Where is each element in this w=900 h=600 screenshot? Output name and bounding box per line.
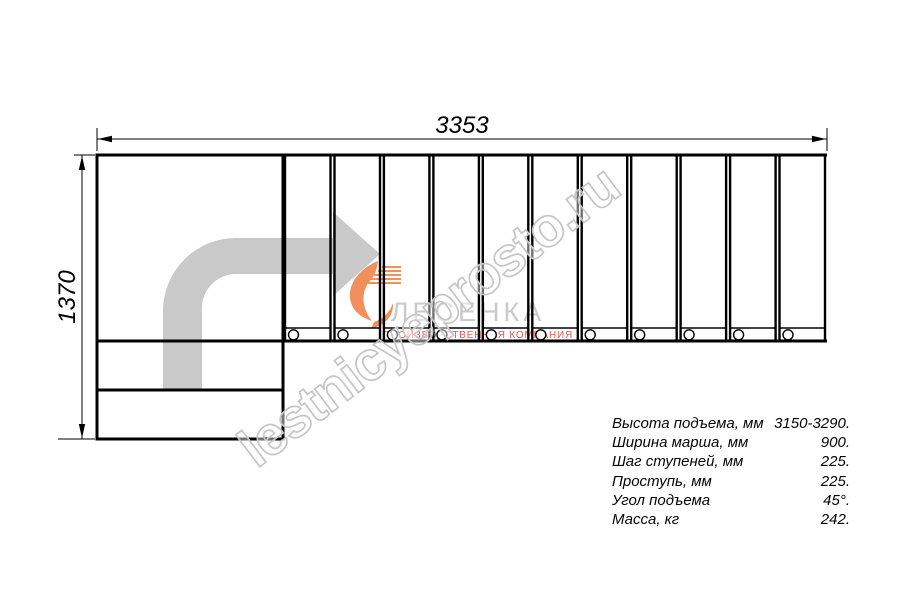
spec-value: 225. <box>821 472 850 491</box>
spec-label: Проступь, мм <box>612 472 712 491</box>
step-fixing-hole <box>783 330 793 340</box>
spec-label: Угол подъема <box>612 491 710 510</box>
step-fixing-hole <box>585 330 595 340</box>
spec-label: Масса, кг <box>612 510 679 529</box>
spec-row: Шаг ступеней, мм225. <box>612 452 850 471</box>
specs-table: Высота подъема, мм3150-3290.Ширина марша… <box>612 414 850 529</box>
spec-label: Ширина марша, мм <box>612 433 748 452</box>
step-rect <box>780 155 826 341</box>
step-rect <box>631 155 677 341</box>
spec-row: Высота подъема, мм3150-3290. <box>612 414 850 433</box>
top-dim-arrow-right <box>812 136 826 142</box>
stair-plan-page: ЛЕСЕНКА производственная компания <box>0 0 900 600</box>
step-fixing-hole <box>684 330 694 340</box>
spec-value: 225. <box>821 452 850 471</box>
spec-label: Высота подъема, мм <box>612 414 764 433</box>
top-dimension-label: 3353 <box>435 112 489 139</box>
spec-row: Угол подъема45°. <box>612 491 850 510</box>
spec-value: 45°. <box>823 491 850 510</box>
left-dimension-label: 1370 <box>54 270 81 324</box>
left-dim-arrow-top <box>79 156 85 170</box>
top-dim-arrow-left <box>98 136 112 142</box>
spec-value: 3150-3290. <box>774 414 850 433</box>
spec-row: Проступь, мм225. <box>612 472 850 491</box>
step-fixing-hole <box>635 330 645 340</box>
spec-row: Ширина марша, мм900. <box>612 433 850 452</box>
step-rect <box>681 155 727 341</box>
step-fixing-hole <box>289 330 299 340</box>
step-fixing-hole <box>486 330 496 340</box>
step-rect <box>730 155 776 341</box>
spec-value: 900. <box>821 433 850 452</box>
spec-row: Масса, кг242. <box>612 510 850 529</box>
step-fixing-hole <box>536 330 546 340</box>
spec-value: 242. <box>821 510 850 529</box>
spec-label: Шаг ступеней, мм <box>612 452 743 471</box>
step-fixing-hole <box>734 330 744 340</box>
left-dim-arrow-bottom <box>79 424 85 438</box>
